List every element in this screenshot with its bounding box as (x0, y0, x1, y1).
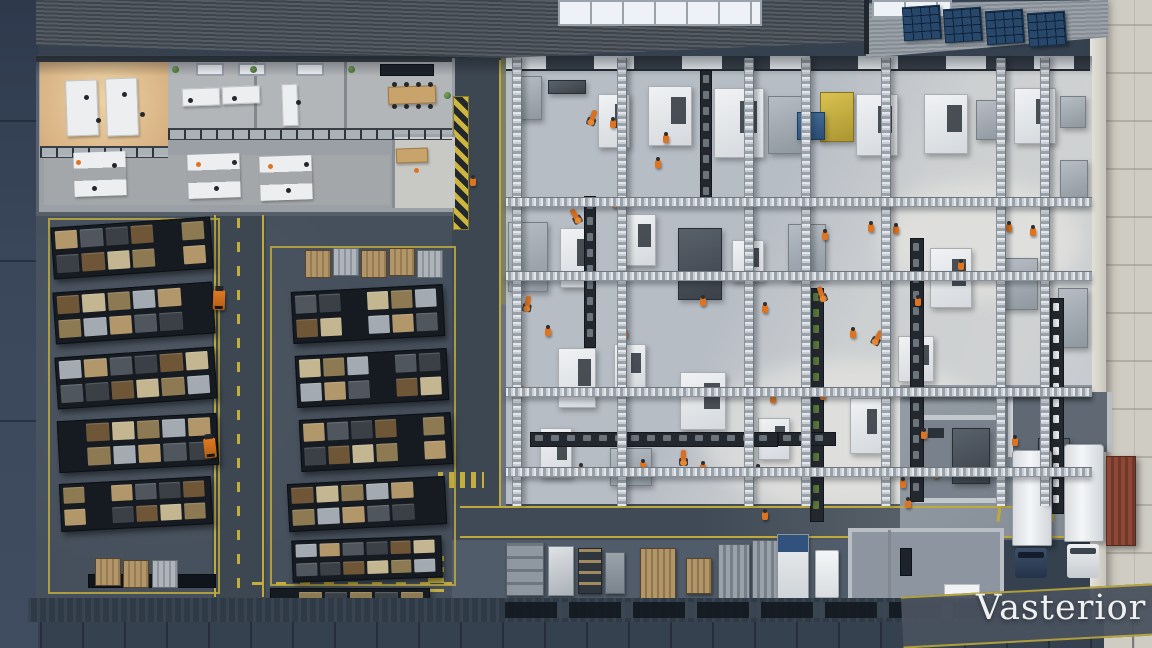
truss-column (617, 58, 627, 506)
office-person (140, 112, 145, 117)
solar-panel (1027, 11, 1067, 48)
conveyor-item (813, 357, 819, 365)
dispatch-room-divider (888, 530, 891, 598)
stored-box (84, 358, 108, 378)
stored-box (391, 559, 412, 573)
office-desk (388, 85, 437, 105)
glass-partition (168, 128, 452, 140)
worker (762, 305, 768, 313)
stored-box (423, 416, 445, 435)
machine (820, 92, 854, 142)
truss-beam (506, 271, 1092, 281)
stored-box (323, 357, 345, 376)
office-person (232, 96, 237, 101)
truck-cab-blue (1015, 548, 1047, 578)
office-person (414, 168, 419, 173)
conveyor-item (1053, 415, 1059, 423)
stored-box (183, 480, 205, 497)
stored-box (82, 252, 106, 272)
pallet-rack (295, 348, 450, 408)
roof-ridge-step (864, 0, 869, 54)
conveyor-item (783, 435, 791, 441)
office-top-wall (36, 55, 452, 62)
conveyor-line (810, 288, 824, 522)
road-edge-line (262, 215, 264, 597)
worker (1012, 438, 1018, 446)
conveyor-item (663, 435, 671, 441)
factory-cutaway-render: Vasterior (0, 0, 1152, 648)
stored-box (111, 484, 133, 501)
worker (762, 512, 768, 520)
pallet (95, 558, 121, 586)
worker (868, 224, 874, 232)
pallet-rack (59, 476, 213, 532)
stored-box (324, 381, 346, 400)
stored-box (319, 293, 341, 312)
worker (921, 431, 927, 439)
conveyor-item (583, 435, 591, 441)
conveyor-item (703, 155, 709, 163)
machine-detail (671, 97, 686, 124)
conveyor-item (535, 435, 543, 441)
office-person (188, 98, 193, 103)
conveyor-item (703, 75, 709, 83)
stored-box (320, 317, 342, 336)
stored-box (375, 419, 397, 438)
office-person (286, 188, 291, 193)
conveyor-item (703, 171, 709, 179)
conveyor-item (703, 123, 709, 131)
stored-box (136, 505, 158, 522)
stored-box (134, 313, 158, 333)
office-person (392, 104, 397, 109)
office-person (76, 160, 81, 165)
robot-arm (676, 450, 692, 466)
pallet-rack (52, 281, 215, 344)
worker (610, 120, 616, 128)
staging-cart (605, 552, 625, 594)
conveyor-item (813, 485, 819, 493)
office-person (416, 104, 421, 109)
stored-box (367, 560, 388, 574)
machine (924, 94, 968, 154)
conveyor-item (587, 217, 593, 225)
conveyor-item (913, 323, 919, 331)
conveyor-item (913, 371, 919, 379)
stored-box (163, 443, 186, 462)
conveyor-item (1053, 319, 1059, 327)
conveyor-item (587, 297, 593, 305)
office-person (214, 186, 219, 191)
office-person (428, 104, 433, 109)
conveyor-item (813, 341, 819, 349)
stored-box (112, 421, 135, 440)
shipping-container (1106, 456, 1136, 546)
worker (893, 226, 899, 234)
machine (1060, 96, 1086, 128)
forklift (213, 290, 226, 310)
stored-box (392, 504, 415, 521)
truss-column (881, 58, 891, 506)
stored-box (295, 295, 317, 314)
stored-box (299, 359, 321, 378)
worker (545, 328, 551, 336)
conveyor-item (813, 309, 819, 317)
staging-mach (548, 546, 574, 596)
worker (663, 135, 669, 143)
stored-box (84, 317, 108, 337)
stored-box (111, 380, 135, 400)
worker (822, 232, 828, 240)
stored-box (420, 376, 442, 395)
hazard-hatch-strip (453, 96, 469, 230)
pallet-rack (50, 216, 213, 279)
stored-box (60, 384, 84, 404)
stored-box (86, 382, 110, 402)
stored-box (57, 295, 81, 315)
conveyor-item (1053, 479, 1059, 487)
stored-box (414, 540, 435, 554)
office-person (404, 82, 409, 87)
stored-box (296, 319, 318, 338)
stored-box (88, 446, 111, 465)
conveyor-item (679, 435, 687, 441)
conveyor-item (703, 91, 709, 99)
stored-box (342, 506, 365, 523)
worker (958, 262, 964, 270)
machine (548, 80, 586, 94)
office-meeting-room-warm (40, 62, 168, 148)
office-person (232, 160, 237, 165)
conveyor-item (815, 435, 823, 441)
stored-box (392, 314, 414, 333)
stored-box (416, 312, 438, 331)
conveyor-item (1053, 399, 1059, 407)
worker (905, 500, 911, 508)
stored-box (414, 559, 435, 573)
worker (470, 178, 476, 186)
stored-box (351, 420, 373, 439)
stored-box (109, 315, 133, 335)
stored-box (327, 421, 349, 440)
worker (700, 298, 706, 306)
staging-cont (718, 544, 750, 600)
conveyor-item (631, 435, 639, 441)
stored-box (390, 540, 411, 554)
conveyor-item (913, 307, 919, 315)
conveyor-item (913, 435, 919, 443)
stored-box (135, 483, 157, 500)
pallet-rack (54, 346, 217, 409)
staging-white (815, 550, 839, 598)
solar-panel (985, 9, 1025, 46)
conveyor-item (727, 435, 735, 441)
conveyor-item (1053, 351, 1059, 359)
machine-detail (947, 105, 962, 132)
room-skylight (296, 63, 324, 76)
conveyor-item (913, 403, 919, 411)
truss-beam (506, 467, 1092, 477)
conveyor-item (587, 329, 593, 337)
conveyor-item (587, 233, 593, 241)
truss-beam (506, 387, 1092, 397)
conveyor-item (913, 243, 919, 251)
staging-palS (686, 558, 712, 594)
forklift (203, 437, 217, 458)
office-desk (281, 84, 298, 127)
stored-box (63, 487, 85, 504)
conveyor-item (587, 281, 593, 289)
conference-tv (380, 64, 434, 76)
stored-box (55, 230, 79, 250)
stored-box (187, 375, 211, 395)
stored-box (317, 507, 340, 524)
worker (850, 330, 856, 338)
conveyor-item (647, 435, 655, 441)
stored-box (56, 254, 80, 274)
office-desk (182, 87, 221, 106)
stored-box (300, 383, 322, 402)
stored-box (415, 288, 437, 307)
stored-box (159, 482, 181, 499)
machine (850, 398, 882, 454)
office-person (96, 118, 101, 123)
stored-box (132, 248, 156, 268)
conveyor-line (700, 70, 712, 200)
stored-box (304, 447, 326, 466)
machine (856, 94, 898, 156)
office-desk (222, 85, 261, 104)
conveyor-item (1053, 303, 1059, 311)
pallet-rack (291, 284, 446, 344)
worker (900, 480, 906, 488)
conveyor-item (703, 107, 709, 115)
staging-shelf (578, 548, 602, 594)
conveyor-item (813, 373, 819, 381)
conveyor-line (530, 432, 778, 447)
worker (655, 160, 661, 168)
office-desk (73, 151, 127, 197)
stored-box (343, 542, 364, 556)
road-edge-line (460, 506, 1092, 508)
production-left-wall (501, 58, 506, 506)
conveyor-item (813, 325, 819, 333)
stored-box (105, 226, 129, 246)
watermark: Vasterior (976, 588, 1146, 628)
office-plant (250, 66, 257, 73)
conveyor-item (913, 483, 919, 491)
office-person (304, 162, 309, 167)
machine (680, 372, 726, 430)
pallet (152, 560, 178, 588)
conveyor-item (567, 435, 575, 441)
conveyor-item (1053, 447, 1059, 455)
worker (1030, 228, 1036, 236)
pallet-rack (299, 412, 454, 472)
stored-box (107, 291, 131, 311)
machine (558, 348, 596, 408)
truss-column (744, 58, 754, 506)
stored-box (343, 561, 364, 575)
stored-box (316, 485, 339, 502)
stored-box (112, 506, 134, 523)
stored-box (295, 544, 316, 558)
door-mat (928, 428, 944, 438)
office-person (404, 104, 409, 109)
stored-box (291, 487, 314, 504)
stored-box (303, 423, 325, 442)
office-plant (348, 66, 355, 73)
office-person (428, 82, 433, 87)
stored-box (158, 288, 182, 308)
stored-box (320, 562, 341, 576)
stored-box (366, 483, 389, 500)
pallet-rack (291, 535, 442, 582)
office-person (122, 92, 127, 97)
stored-box (181, 221, 205, 241)
conveyor-item (1053, 335, 1059, 343)
stored-box (341, 484, 364, 501)
stored-box (296, 563, 317, 577)
stored-box (159, 312, 183, 332)
office-person (296, 100, 301, 105)
staging-palL (640, 548, 676, 600)
conveyor-item (703, 139, 709, 147)
stored-box (184, 502, 206, 519)
stored-box (376, 443, 398, 462)
machine-detail (638, 224, 651, 247)
office-desk (65, 79, 99, 136)
pallet (333, 248, 359, 276)
office-person (196, 162, 201, 167)
conveyor-item (813, 405, 819, 413)
office-person (392, 82, 397, 87)
stored-box (138, 444, 161, 463)
stored-box (109, 356, 133, 376)
conveyor-item (1053, 495, 1059, 503)
conveyor-item (913, 355, 919, 363)
stored-box (352, 444, 374, 463)
machine-detail (867, 409, 878, 434)
stored-box (161, 377, 185, 397)
stored-box (424, 440, 446, 459)
stored-box (183, 245, 207, 265)
stored-box (348, 380, 370, 399)
conveyor-item (913, 339, 919, 347)
office-desk (396, 147, 429, 163)
truss-column (996, 58, 1006, 506)
conveyor-line (1050, 298, 1064, 514)
conveyor-item (813, 501, 819, 509)
solar-panel (902, 5, 942, 42)
stored-box (136, 378, 160, 398)
office-person (112, 163, 117, 168)
conveyor-item (913, 259, 919, 267)
office-desk (105, 77, 139, 136)
conveyor-item (1053, 367, 1059, 375)
truck-cab-white (1067, 544, 1099, 578)
conveyor-item (1053, 431, 1059, 439)
pallet (389, 248, 415, 276)
stored-box (82, 293, 106, 313)
conveyor-item (703, 187, 709, 195)
stored-box (160, 353, 184, 373)
machine (1060, 160, 1088, 202)
stored-box (347, 356, 369, 375)
solar-panel (943, 7, 983, 44)
truck-trailer (1064, 444, 1104, 542)
office-plant (444, 92, 451, 99)
stored-box (59, 360, 83, 380)
dock-dash-line (252, 582, 452, 585)
conveyor-item (551, 435, 559, 441)
conveyor-item (759, 435, 767, 441)
office-person (84, 95, 89, 100)
office-wall-divider (344, 62, 347, 130)
stored-box (58, 319, 82, 339)
office-person (416, 82, 421, 87)
dispatch-desk (900, 548, 912, 576)
stored-box (396, 378, 418, 397)
pallet (361, 250, 387, 278)
road-center-dashes (237, 218, 240, 596)
exterior-pavement-right (1104, 0, 1152, 648)
staging-truckB (777, 534, 809, 600)
machine-detail (631, 353, 642, 373)
stored-box (419, 352, 441, 371)
pallet (305, 250, 331, 278)
stored-box (366, 541, 387, 555)
stored-box (292, 509, 315, 526)
office-person (268, 164, 273, 169)
stored-box (368, 315, 390, 334)
truss-column (801, 58, 811, 506)
stored-box (328, 445, 350, 464)
machine-detail (578, 359, 591, 386)
pallet (417, 250, 443, 278)
exterior-pavement-left (0, 0, 38, 648)
stored-box (80, 228, 104, 248)
conveyor-item (587, 249, 593, 257)
stored-box (113, 445, 136, 464)
truss-beam (506, 197, 1092, 207)
conveyor-item (695, 435, 703, 441)
conveyor-item (599, 435, 607, 441)
machine (678, 228, 722, 300)
worker (1006, 224, 1012, 232)
worker (915, 298, 921, 306)
machine (648, 86, 692, 146)
conveyor-item (711, 435, 719, 441)
office-person (92, 186, 97, 191)
stored-box (132, 289, 156, 309)
stored-box (134, 354, 158, 374)
stored-box (86, 423, 109, 442)
stored-box (319, 543, 340, 557)
pallet-rack (57, 413, 220, 473)
stored-box (107, 250, 131, 270)
stored-box (130, 224, 154, 244)
stored-box (391, 482, 414, 499)
office-small-room (392, 134, 455, 208)
conveyor-item (813, 421, 819, 429)
truss-column (1040, 58, 1050, 506)
truss-column (512, 58, 522, 506)
office-plant (172, 66, 179, 73)
machine (714, 88, 764, 158)
roof-skylight (558, 0, 762, 26)
staging-cab (506, 542, 544, 596)
